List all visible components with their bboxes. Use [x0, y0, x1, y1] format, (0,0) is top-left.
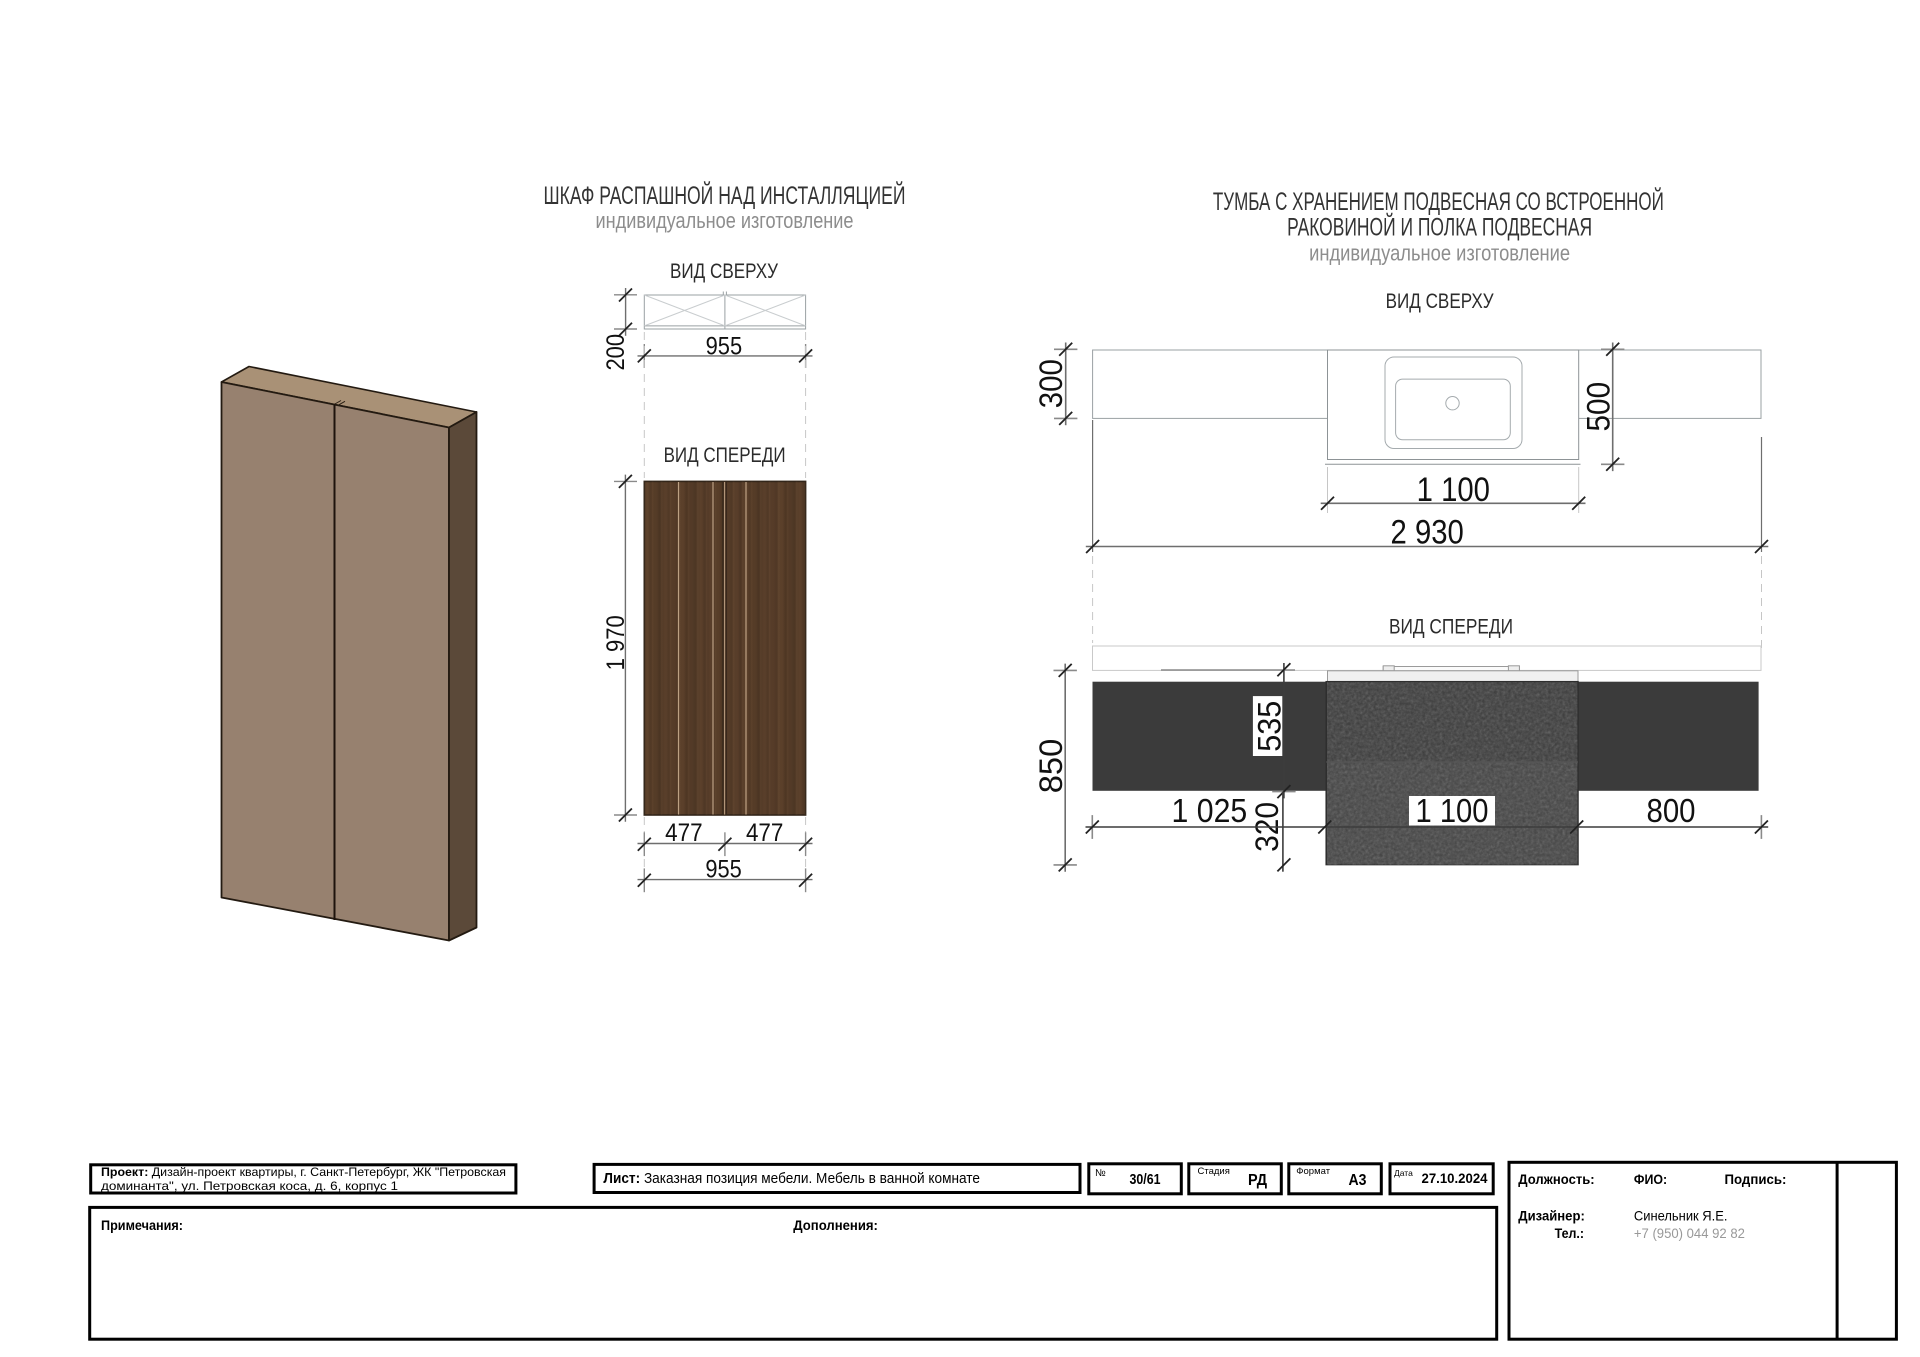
svg-text:500: 500	[1581, 382, 1617, 432]
svg-text:Дополнения:: Дополнения:	[793, 1218, 878, 1233]
svg-text:477: 477	[746, 819, 784, 847]
svg-text:Лист: Заказная позиция мебели.: Лист: Заказная позиция мебели. Мебель в …	[603, 1171, 980, 1187]
svg-text:ТУМБА С ХРАНЕНИЕМ ПОДВЕСНАЯ СО: ТУМБА С ХРАНЕНИЕМ ПОДВЕСНАЯ СО ВСТРОЕННО…	[1213, 186, 1664, 216]
svg-text:535: 535	[1252, 701, 1288, 752]
svg-text:800: 800	[1647, 792, 1696, 829]
svg-text:РД: РД	[1248, 1172, 1267, 1189]
svg-text:индивидуальное изготовление: индивидуальное изготовление	[596, 208, 854, 233]
svg-text:1 100: 1 100	[1417, 471, 1490, 509]
svg-text:Дата: Дата	[1394, 1168, 1413, 1178]
svg-text:Подпись:: Подпись:	[1725, 1171, 1787, 1187]
svg-text:индивидуальное изготовление: индивидуальное изготовление	[1309, 241, 1570, 266]
svg-text:1 970: 1 970	[602, 615, 630, 670]
svg-text:ВИД СВЕРХУ: ВИД СВЕРХУ	[1386, 290, 1495, 313]
svg-text:477: 477	[665, 819, 703, 847]
svg-text:300: 300	[1033, 359, 1069, 408]
svg-text:ВИД СВЕРХУ: ВИД СВЕРХУ	[670, 260, 779, 283]
svg-text:850: 850	[1033, 739, 1069, 794]
svg-text:955: 955	[706, 333, 743, 361]
svg-text:30/61: 30/61	[1130, 1171, 1161, 1188]
svg-text:А3: А3	[1349, 1172, 1367, 1189]
svg-text:200: 200	[602, 334, 630, 371]
svg-text:доминанта", ул. Петровская кос: доминанта", ул. Петровская коса, д. 6, к…	[101, 1179, 398, 1193]
svg-text:955: 955	[705, 855, 741, 883]
svg-text:1 025: 1 025	[1172, 792, 1248, 829]
svg-text:Формат: Формат	[1296, 1166, 1330, 1177]
svg-text:1 100: 1 100	[1416, 792, 1489, 829]
svg-text:Тел.:: Тел.:	[1555, 1225, 1584, 1241]
svg-text:ВИД СПЕРЕДИ: ВИД СПЕРЕДИ	[664, 444, 786, 467]
svg-text:Синельник Я.Е.: Синельник Я.Е.	[1634, 1208, 1728, 1224]
svg-text:ШКАФ РАСПАШНОЙ НАД ИНСТАЛЛЯЦИЕ: ШКАФ РАСПАШНОЙ НАД ИНСТАЛЛЯЦИЕЙ	[544, 180, 906, 210]
svg-text:Должность:: Должность:	[1518, 1171, 1594, 1187]
svg-text:ФИО:: ФИО:	[1634, 1171, 1667, 1187]
svg-text:Проект: Дизайн-проект квартиры: Проект: Дизайн-проект квартиры, г. Санкт…	[101, 1165, 506, 1179]
svg-text:2 930: 2 930	[1391, 514, 1464, 552]
svg-text:РАКОВИНОЙ И ПОЛКА ПОДВЕСНАЯ: РАКОВИНОЙ И ПОЛКА ПОДВЕСНАЯ	[1287, 212, 1592, 242]
svg-text:Стадия: Стадия	[1198, 1166, 1230, 1177]
svg-text:№: №	[1095, 1168, 1106, 1179]
svg-text:Дизайнер:: Дизайнер:	[1518, 1208, 1585, 1224]
svg-text:ВИД СПЕРЕДИ: ВИД СПЕРЕДИ	[1389, 616, 1513, 639]
svg-text:+7 (950) 044 92 82: +7 (950) 044 92 82	[1634, 1225, 1745, 1241]
svg-text:27.10.2024: 27.10.2024	[1422, 1171, 1488, 1186]
svg-text:Примечания:: Примечания:	[101, 1218, 183, 1233]
